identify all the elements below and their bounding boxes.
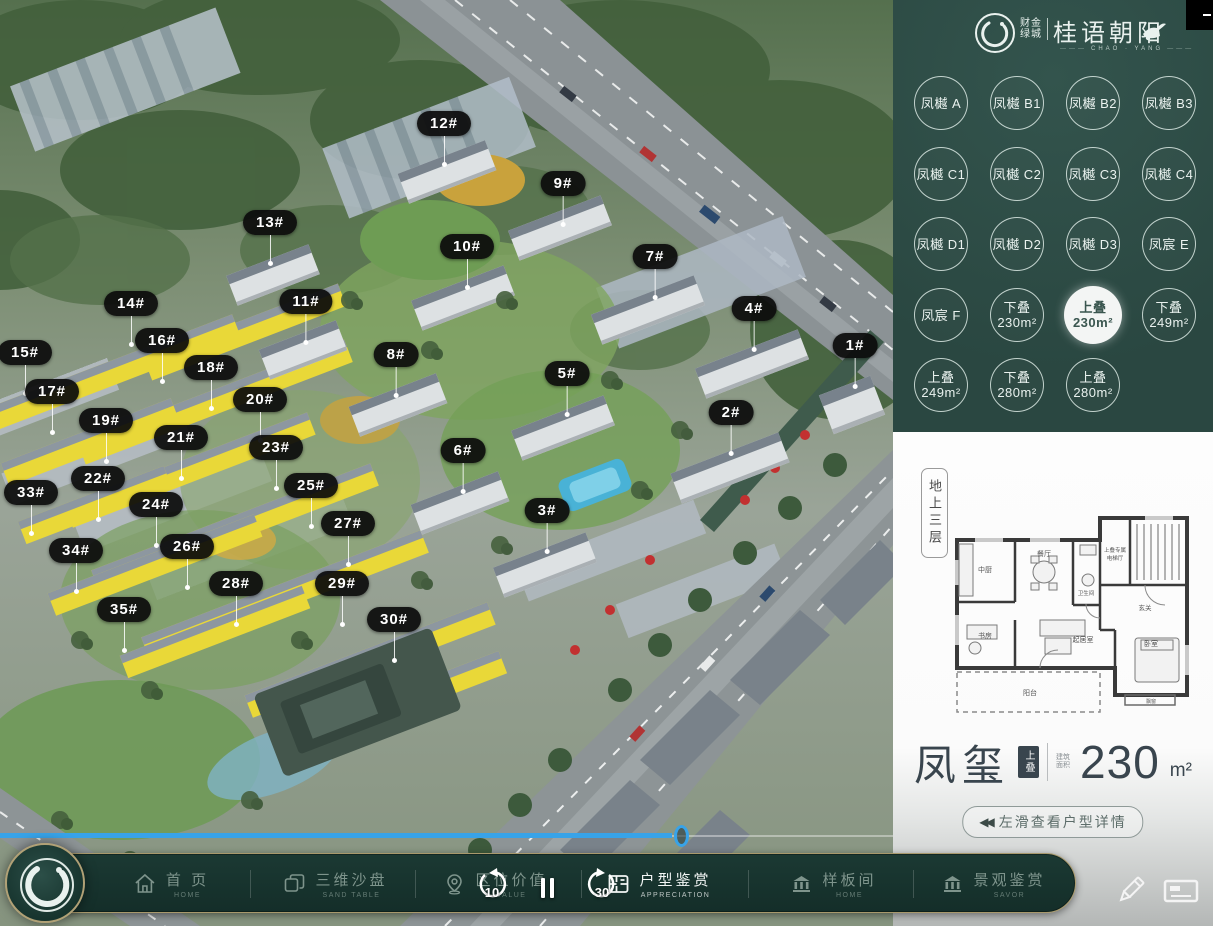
unit-button-凤樾 D1[interactable]: 凤樾 D1	[914, 217, 968, 271]
leader-line	[124, 622, 125, 648]
building-number: 29#	[315, 571, 369, 596]
building-number: 20#	[233, 387, 287, 412]
leader-dot	[274, 486, 279, 491]
unit-button-凤宸 E[interactable]: 凤宸 E	[1142, 217, 1196, 271]
leader-dot	[74, 589, 79, 594]
leader-dot	[154, 543, 159, 548]
leader-line	[655, 269, 656, 295]
unit-button-上叠249m²[interactable]: 上叠249m²	[914, 358, 968, 412]
nav-title: 样板间	[822, 869, 876, 890]
leader-dot	[29, 531, 34, 536]
building-label-12[interactable]: 12#	[417, 111, 471, 167]
slide-hint-label: 左滑查看户型详情	[999, 812, 1127, 832]
building-label-16[interactable]: 16#	[135, 328, 189, 384]
leader-line	[444, 136, 445, 162]
building-label-30[interactable]: 30#	[367, 607, 421, 663]
unit-button-凤樾 C2[interactable]: 凤樾 C2	[990, 147, 1044, 201]
leader-dot	[179, 476, 184, 481]
building-label-17[interactable]: 17#	[25, 379, 79, 435]
leader-line	[236, 596, 237, 622]
leader-dot	[50, 430, 55, 435]
unit-button-下叠249m²[interactable]: 下叠249m²	[1142, 288, 1196, 342]
unit-name: 凤玺	[914, 732, 1010, 793]
leader-line	[394, 632, 395, 658]
unit-button-凤樾 A[interactable]: 凤樾 A	[914, 76, 968, 130]
nav-title: 三维沙盘	[315, 869, 387, 890]
right-panel: 财金绿城 桂语朝阳 CHAO · YANG 凤樾 A凤樾 B1凤樾 B2凤樾 B…	[893, 0, 1213, 926]
building-number: 25#	[284, 473, 338, 498]
location-icon	[442, 872, 466, 896]
room-label: 卫生间	[1078, 589, 1095, 597]
building-label-28[interactable]: 28#	[209, 571, 263, 627]
building-number: 33#	[4, 480, 58, 505]
building-label-2[interactable]: 2#	[709, 400, 754, 456]
leader-dot	[853, 384, 858, 389]
leader-line	[567, 386, 568, 412]
leader-dot	[185, 585, 190, 590]
leader-line	[187, 559, 188, 585]
keyboard-icon[interactable]	[1163, 879, 1199, 903]
leader-dot	[122, 648, 127, 653]
leader-line	[547, 523, 548, 549]
area-value: 230	[1080, 735, 1160, 789]
home-icon	[133, 872, 157, 896]
room-label: 电梯厅	[1107, 554, 1124, 562]
leader-dot	[394, 393, 399, 398]
leader-line	[276, 460, 277, 486]
floorplan-drawing: 中厨餐厅卫生间上叠专属电梯厅玄关书房起居室卧室阳台飘窗	[945, 490, 1195, 730]
rewind-amount: 10	[472, 885, 512, 900]
slide-hint-button[interactable]: ◀◀ 左滑查看户型详情	[962, 806, 1143, 838]
unit-button-凤宸 F[interactable]: 凤宸 F	[914, 288, 968, 342]
leader-dot	[442, 162, 447, 167]
building-number: 10#	[440, 234, 494, 259]
building-number: 13#	[243, 210, 297, 235]
building-number: 11#	[279, 289, 332, 314]
leader-dot	[565, 412, 570, 417]
nav-divider	[913, 870, 914, 898]
building-number: 30#	[367, 607, 421, 632]
building-number: 26#	[160, 534, 214, 559]
leader-dot	[545, 549, 550, 554]
leader-dot	[96, 517, 101, 522]
landscape-icon	[940, 872, 964, 896]
video-controls: 10 30	[472, 866, 622, 910]
leader-line	[156, 517, 157, 543]
unit-button-凤樾 B2[interactable]: 凤樾 B2	[1066, 76, 1120, 130]
building-number: 17#	[25, 379, 79, 404]
nav-divider	[250, 870, 251, 898]
nav-title: 景观鉴赏	[973, 869, 1045, 890]
leader-dot	[268, 261, 273, 266]
nav-subtitle: APPRECIATION	[641, 892, 711, 899]
leader-line	[76, 563, 77, 589]
building-number: 1#	[833, 333, 878, 358]
building-label-21[interactable]: 21#	[154, 425, 208, 481]
room-label: 卧室	[1144, 639, 1158, 648]
building-label-4[interactable]: 4#	[732, 296, 777, 352]
unit-button-上叠230m²[interactable]: 上叠230m²	[1064, 286, 1122, 344]
room-label: 起居室	[1073, 635, 1094, 644]
building-number: 22#	[71, 466, 125, 491]
building-number: 16#	[135, 328, 189, 353]
building-number: 27#	[321, 511, 375, 536]
unit-button-凤樾 D2[interactable]: 凤樾 D2	[990, 217, 1044, 271]
sand-table-view[interactable]: 1#2#3#4#5#6#7#8#9#10#11#12#13#14#15#16#1…	[0, 0, 893, 926]
leader-line	[270, 235, 271, 261]
corner-overlay	[1186, 0, 1213, 30]
app-root: 1#2#3#4#5#6#7#8#9#10#11#12#13#14#15#16#1…	[0, 0, 1213, 926]
nav-item-sand-table[interactable]: 三维沙盘SAND TABLE	[282, 854, 387, 914]
building-number: 7#	[633, 244, 678, 269]
leader-dot	[392, 658, 397, 663]
building-label-18[interactable]: 18#	[184, 355, 238, 411]
room-label: 阳台	[1023, 688, 1037, 697]
building-label-13[interactable]: 13#	[243, 210, 297, 266]
room-label: 餐厅	[1037, 549, 1051, 558]
pause-button[interactable]	[541, 868, 554, 908]
building-label-9[interactable]: 9#	[541, 171, 586, 227]
leader-line	[98, 491, 99, 517]
nav-divider	[748, 870, 749, 898]
leader-dot	[465, 285, 470, 290]
building-number: 3#	[525, 498, 570, 523]
leader-line	[31, 505, 32, 531]
building-label-10[interactable]: 10#	[440, 234, 494, 290]
building-label-29[interactable]: 29#	[315, 571, 369, 627]
nav-item-appreciation[interactable]: 户型鉴赏APPRECIATION	[606, 854, 711, 914]
leader-line	[211, 380, 212, 406]
leader-line	[106, 433, 107, 459]
building-number: 6#	[441, 438, 486, 463]
leader-line	[855, 358, 856, 384]
unit-type-grid: 凤樾 A凤樾 B1凤樾 B2凤樾 B3凤樾 C1凤樾 C2凤樾 C3凤樾 C4凤…	[893, 66, 1213, 432]
building-label-27[interactable]: 27#	[321, 511, 375, 567]
brand-logo-icon	[973, 11, 1017, 55]
building-label-3[interactable]: 3#	[525, 498, 570, 554]
leader-line	[311, 498, 312, 524]
leader-line	[131, 316, 132, 342]
leader-dot	[346, 562, 351, 567]
building-number: 2#	[709, 400, 754, 425]
building-number: 15#	[0, 340, 52, 365]
showroom-icon	[789, 872, 813, 896]
building-number: 18#	[184, 355, 238, 380]
pencil-icon[interactable]	[1113, 872, 1149, 908]
nav-title: 首 页	[166, 869, 209, 890]
building-label-35[interactable]: 35#	[97, 597, 151, 653]
leader-dot	[160, 379, 165, 384]
leader-line	[348, 536, 349, 562]
building-number: 14#	[104, 291, 158, 316]
seek-handle[interactable]	[674, 825, 689, 847]
double-left-arrow-icon: ◀◀	[979, 815, 991, 829]
brand-sub: CHAO · YANG	[1056, 46, 1198, 52]
leader-line	[563, 196, 564, 222]
sand-table-icon	[282, 872, 306, 896]
unit-button-凤樾 D3[interactable]: 凤樾 D3	[1066, 217, 1120, 271]
building-number: 4#	[732, 296, 777, 321]
leader-line	[305, 314, 306, 340]
navbar-logo[interactable]	[5, 843, 85, 923]
nav-title: 户型鉴赏	[639, 869, 711, 890]
seek-fill	[0, 833, 672, 838]
building-number: 35#	[97, 597, 151, 622]
nav-item-home[interactable]: 样板间HOME	[789, 854, 876, 914]
leader-line	[52, 404, 53, 430]
brand-header: 财金绿城 桂语朝阳 CHAO · YANG	[893, 0, 1213, 66]
unit-button-下叠230m²[interactable]: 下叠230m²	[990, 288, 1044, 342]
unit-button-凤樾 C4[interactable]: 凤樾 C4	[1142, 147, 1196, 201]
building-number: 24#	[129, 492, 183, 517]
building-number: 12#	[417, 111, 471, 136]
leader-dot	[729, 451, 734, 456]
nav-subtitle: HOME	[174, 892, 201, 899]
room-label: 上叠专属	[1104, 546, 1126, 554]
phoenix-icon	[1139, 18, 1169, 44]
building-number: 8#	[374, 342, 419, 367]
building-label-26[interactable]: 26#	[160, 534, 214, 590]
leader-dot	[234, 622, 239, 627]
building-label-22[interactable]: 22#	[71, 466, 125, 522]
building-label-5[interactable]: 5#	[545, 361, 590, 417]
area-unit: m²	[1170, 760, 1192, 782]
leader-dot	[104, 459, 109, 464]
unit-stack-tag: 上叠	[1018, 746, 1039, 778]
building-label-7[interactable]: 7#	[633, 244, 678, 300]
unit-button-凤樾 B3[interactable]: 凤樾 B3	[1142, 76, 1196, 130]
leader-line	[181, 450, 182, 476]
video-seekbar[interactable]	[0, 826, 893, 846]
floorplan-title: 凤玺 上叠 建筑面积 230 m²	[893, 732, 1213, 792]
nav-subtitle: SAND TABLE	[323, 892, 381, 899]
room-label: 中厨	[978, 565, 992, 574]
unit-button-凤樾 B1[interactable]: 凤樾 B1	[990, 76, 1044, 130]
unit-button-下叠280m²[interactable]: 下叠280m²	[990, 358, 1044, 412]
building-label-33[interactable]: 33#	[4, 480, 58, 536]
building-label-34[interactable]: 34#	[49, 538, 103, 594]
leader-line	[754, 321, 755, 347]
building-number: 9#	[541, 171, 586, 196]
building-number: 21#	[154, 425, 208, 450]
brand-pre-label: 财金绿城	[1020, 18, 1048, 40]
building-label-19[interactable]: 19#	[79, 408, 133, 464]
building-number: 34#	[49, 538, 103, 563]
leader-line	[342, 596, 343, 622]
building-number: 23#	[249, 435, 303, 460]
unit-button-凤樾 C1[interactable]: 凤樾 C1	[914, 147, 968, 201]
leader-dot	[209, 406, 214, 411]
room-label: 玄关	[1139, 603, 1153, 612]
building-number: 5#	[545, 361, 590, 386]
room-label: 书房	[978, 631, 992, 640]
building-number: 19#	[79, 408, 133, 433]
rewind-10-button[interactable]: 10	[472, 868, 512, 908]
nav-item-home[interactable]: 首 页HOME	[133, 854, 209, 914]
building-number: 28#	[209, 571, 263, 596]
nav-item-savor[interactable]: 景观鉴赏SAVOR	[940, 854, 1045, 914]
forward-30-button[interactable]: 30	[582, 868, 622, 908]
building-label-11[interactable]: 11#	[279, 289, 332, 345]
floorplan-panel: 地上三层	[893, 432, 1213, 926]
area-prefix: 建筑面积	[1056, 754, 1072, 770]
building-label-1[interactable]: 1#	[833, 333, 878, 389]
building-label-6[interactable]: 6#	[441, 438, 486, 494]
leader-dot	[461, 489, 466, 494]
leader-line	[463, 463, 464, 489]
leader-line	[731, 425, 732, 451]
unit-button-上叠280m²[interactable]: 上叠280m²	[1066, 358, 1120, 412]
leader-dot	[340, 622, 345, 627]
leader-dot	[309, 524, 314, 529]
floor-level-tag: 地上三层	[921, 468, 948, 558]
leader-line	[396, 367, 397, 393]
leader-dot	[653, 295, 658, 300]
room-label: 飘窗	[1146, 698, 1156, 705]
divider	[1047, 743, 1048, 781]
leader-dot	[129, 342, 134, 347]
nav-subtitle: SAVOR	[994, 892, 1026, 899]
building-label-8[interactable]: 8#	[374, 342, 419, 398]
unit-selector-panel: 财金绿城 桂语朝阳 CHAO · YANG 凤樾 A凤樾 B1凤樾 B2凤樾 B…	[893, 0, 1213, 432]
leader-dot	[561, 222, 566, 227]
leader-dot	[303, 340, 308, 345]
nav-subtitle: HOME	[836, 892, 863, 899]
leader-line	[162, 353, 163, 379]
leader-line	[467, 259, 468, 285]
leader-dot	[752, 347, 757, 352]
unit-button-凤樾 C3[interactable]: 凤樾 C3	[1066, 147, 1120, 201]
nav-divider	[415, 870, 416, 898]
forward-amount: 30	[582, 885, 622, 900]
